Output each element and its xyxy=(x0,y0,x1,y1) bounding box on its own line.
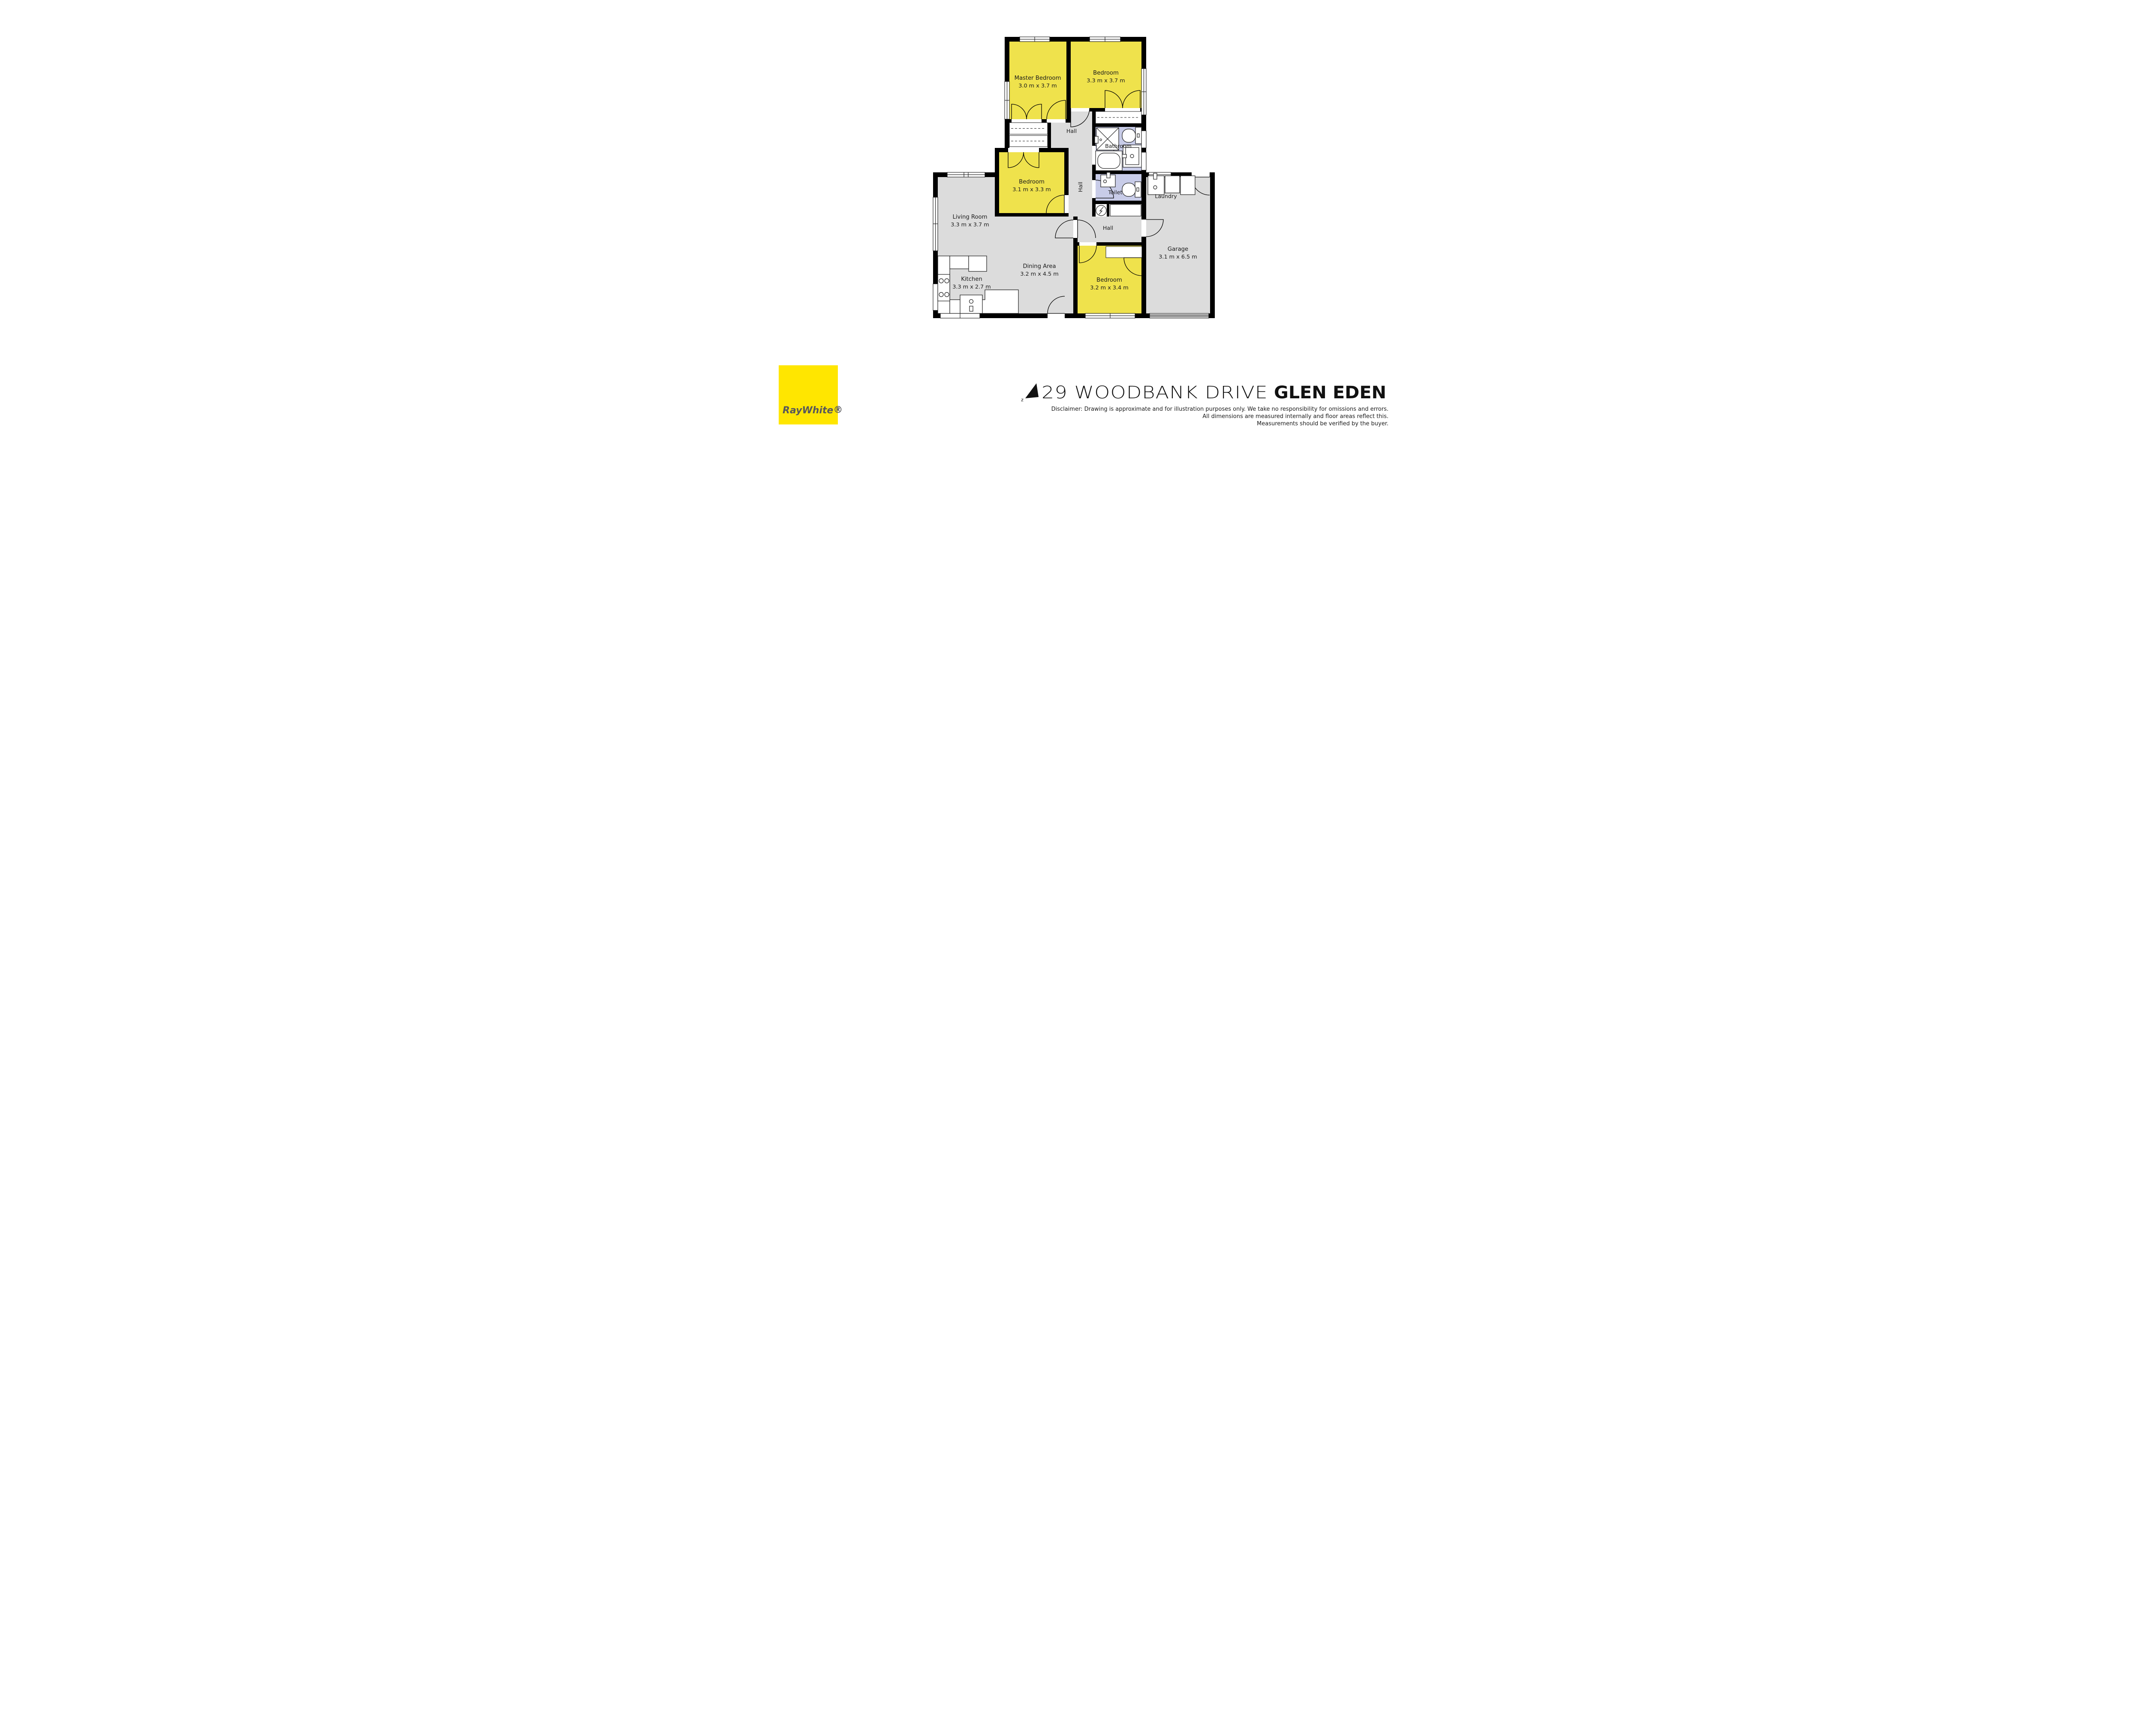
floorplan-canvas: Master Bedroom 3.0 m x 3.7 m Bedroom 3.3… xyxy=(747,0,1397,434)
dims-bedroom3: 3.1 m x 3.3 m xyxy=(1012,187,1051,193)
window-bathroom-right-1 xyxy=(1141,131,1146,148)
label-hall-top: Hall xyxy=(1066,128,1077,134)
label-dining-area: Dining Area xyxy=(1023,263,1056,270)
laundry-tub-icon xyxy=(1148,173,1164,195)
bathtub-icon xyxy=(1096,151,1122,171)
disclaimer-line-3: Measurements should be verified by the b… xyxy=(1257,421,1388,427)
kitchen-cabinet-1 xyxy=(950,256,969,269)
kitchen-sink-icon xyxy=(960,295,982,313)
disclaimer-line-2: All dimensions are measured internally a… xyxy=(1202,413,1388,420)
north-arrow-icon: z xyxy=(1021,383,1039,403)
laundry-bench-2 xyxy=(1180,176,1195,195)
north-label: z xyxy=(1021,397,1024,403)
toilet-icon-toilet-room xyxy=(1122,182,1141,197)
dims-dining-area: 3.2 m x 4.5 m xyxy=(1020,271,1058,277)
laundry-bench-1 xyxy=(1165,176,1180,193)
address-street: 29 WOODBANK DRIVE xyxy=(1042,383,1268,403)
floorplan-page: Master Bedroom 3.0 m x 3.7 m Bedroom 3.3… xyxy=(747,0,1397,434)
label-garage: Garage xyxy=(1168,246,1188,253)
label-bedroom3: Bedroom xyxy=(1019,179,1045,185)
closet-bedroom4 xyxy=(1106,247,1142,258)
hall-cupboard xyxy=(1110,205,1141,216)
label-living-room: Living Room xyxy=(953,214,988,220)
label-hall-lower: Hall xyxy=(1103,225,1113,231)
disclaimer: Disclaimer: Drawing is approximate and f… xyxy=(1051,406,1388,427)
toilet-icon-bathroom xyxy=(1122,127,1141,144)
ray-white-logo: RayWhite® xyxy=(779,365,843,424)
label-hall-mid: Hall xyxy=(1077,182,1084,192)
label-laundry: Laundry xyxy=(1155,193,1177,199)
label-bathroom: Bathroom xyxy=(1105,143,1132,149)
stove-icon xyxy=(938,274,950,301)
dims-master-bedroom: 3.0 m x 3.7 m xyxy=(1018,83,1057,89)
label-toilet: Toilet xyxy=(1108,189,1123,196)
title-block: z 29 WOODBANK DRIVE GLEN EDEN Disclaimer… xyxy=(779,365,1388,427)
dims-kitchen: 3.3 m x 2.7 m xyxy=(952,284,991,290)
address-suburb: GLEN EDEN xyxy=(1274,383,1386,403)
dims-living-room: 3.3 m x 3.7 m xyxy=(951,222,989,228)
hot-water-cylinder-icon xyxy=(1096,205,1106,216)
label-master-bedroom: Master Bedroom xyxy=(1015,75,1061,81)
hall-top-floor xyxy=(1051,123,1092,148)
label-bedroom4: Bedroom xyxy=(1096,277,1122,283)
dims-garage: 3.1 m x 6.5 m xyxy=(1159,254,1197,260)
label-kitchen: Kitchen xyxy=(961,276,982,283)
dims-bedroom4: 3.2 m x 3.4 m xyxy=(1090,285,1128,291)
logo-registered-mark: ® xyxy=(833,405,843,415)
label-bedroom2: Bedroom xyxy=(1093,70,1119,76)
dims-bedroom2: 3.3 m x 3.7 m xyxy=(1087,78,1125,84)
logo-brand-text: RayWhite xyxy=(783,405,833,416)
window-bathroom-right-2 xyxy=(1141,152,1146,170)
disclaimer-line-1: Disclaimer: Drawing is approximate and f… xyxy=(1051,406,1388,412)
kitchen-cabinet-2 xyxy=(969,256,987,271)
svg-text:RayWhite®: RayWhite® xyxy=(783,405,843,416)
window-kitchen-left xyxy=(933,284,938,310)
